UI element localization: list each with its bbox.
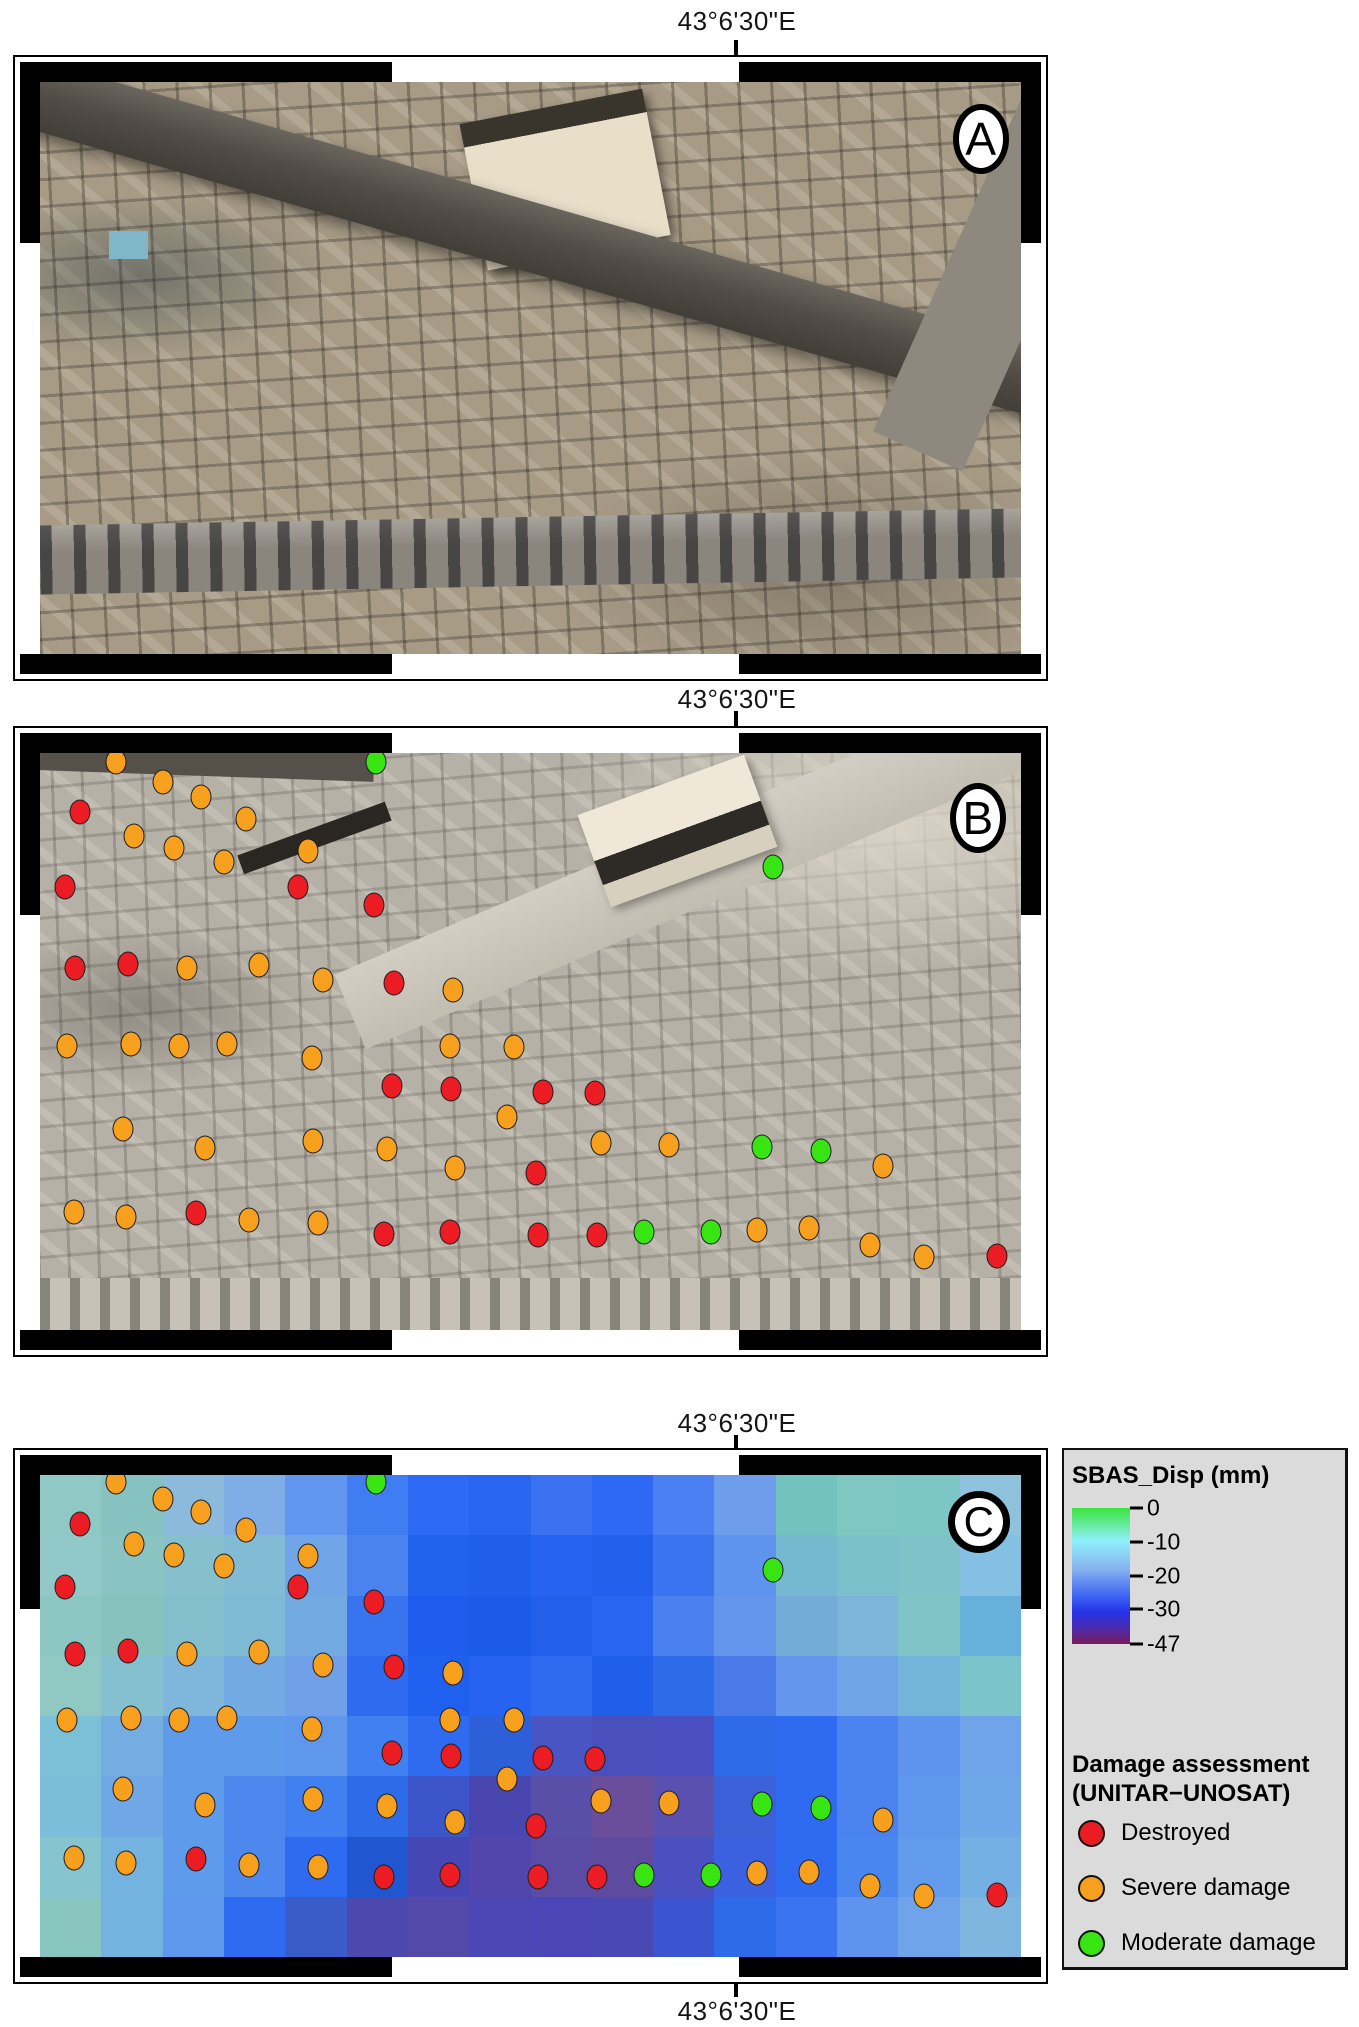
tick-label: -20 <box>1147 1563 1180 1590</box>
damage-dot-destroyed <box>585 1080 606 1105</box>
severe-swatch <box>1078 1875 1105 1902</box>
damage-dot-destroyed <box>363 1589 384 1614</box>
damage-dot-destroyed <box>374 1864 395 1889</box>
damage-dot-destroyed <box>288 1574 309 1599</box>
damage-dot-severe <box>248 1640 269 1665</box>
damage-dot-severe <box>444 1809 465 1834</box>
damage-dot-severe <box>297 838 318 863</box>
damage-dot-moderate <box>701 1219 722 1244</box>
damage-dot-severe <box>190 1499 211 1524</box>
damage-dot-severe <box>217 1031 238 1056</box>
damage-dot-destroyed <box>65 1642 86 1667</box>
damage-points-layer <box>40 1475 1021 1957</box>
coordinate-label-top: 43°6'30"E <box>537 6 937 37</box>
damage-legend-label: Severe damage <box>1121 1874 1290 1902</box>
damage-dot-destroyed <box>987 1243 1008 1268</box>
tick-label: -10 <box>1147 1529 1180 1556</box>
damage-dot-destroyed <box>526 1161 547 1186</box>
graticule-band-right <box>1021 62 1041 674</box>
graticule-band-top <box>20 733 1041 753</box>
damage-dot-severe <box>113 1117 134 1142</box>
damage-dot-severe <box>591 1788 612 1813</box>
damage-dot-moderate <box>752 1792 773 1817</box>
damage-dot-severe <box>496 1104 517 1129</box>
panel-b: B <box>13 726 1048 1357</box>
graticule-band-left <box>20 733 40 1350</box>
damage-dot-severe <box>121 1031 142 1056</box>
damage-dot-severe <box>164 836 185 861</box>
colorbar-tick: -10 <box>1130 1529 1180 1556</box>
damage-legend-title-line1: Damage assessment <box>1072 1750 1309 1779</box>
damage-dot-destroyed <box>65 955 86 980</box>
damage-dot-severe <box>872 1154 893 1179</box>
graticule-white-segment <box>392 1330 739 1350</box>
graticule-white-segment <box>1021 243 1041 654</box>
graticule-band-right <box>1021 733 1041 1350</box>
graticule-white-segment <box>392 654 739 674</box>
panel-a-badge: A <box>953 104 1009 174</box>
damage-legend-label: Destroyed <box>1121 1819 1230 1847</box>
colorbar-tick: -20 <box>1130 1563 1180 1590</box>
tick-mark <box>1130 1507 1143 1510</box>
tick-mark <box>1130 1643 1143 1646</box>
damage-dot-severe <box>105 1475 126 1495</box>
damage-dot-severe <box>238 1207 259 1232</box>
damage-dot-severe <box>301 1045 322 1070</box>
colorbar-tick: -47 <box>1130 1631 1180 1658</box>
graticule-white-segment <box>1021 915 1041 1330</box>
damage-dot-severe <box>217 1705 238 1730</box>
damage-dot-destroyed <box>70 799 91 824</box>
damage-dot-severe <box>747 1217 768 1242</box>
damage-dot-severe <box>307 1210 328 1235</box>
damage-dot-destroyed <box>533 1079 554 1104</box>
damage-dot-severe <box>859 1232 880 1257</box>
damage-dot-destroyed <box>587 1865 608 1890</box>
damage-dot-destroyed <box>384 1654 405 1679</box>
damage-dot-destroyed <box>118 951 139 976</box>
damage-dot-destroyed <box>374 1221 395 1246</box>
legend-box: SBAS_Disp (mm) 0-10-20-30-47 Damage asse… <box>1062 1448 1348 1970</box>
damage-dot-severe <box>302 1129 323 1154</box>
damage-dot-severe <box>190 784 211 809</box>
damage-dot-severe <box>194 1136 215 1161</box>
damage-dot-moderate <box>634 1863 655 1888</box>
panel-a-letter: A <box>965 112 996 166</box>
graticule-band-top <box>20 1455 1041 1475</box>
damage-dot-severe <box>113 1777 134 1802</box>
damage-dot-destroyed <box>185 1200 206 1225</box>
damage-dot-severe <box>214 850 235 875</box>
damage-dot-severe <box>152 1487 173 1512</box>
graticule-white-segment <box>20 243 40 654</box>
damage-dot-severe <box>57 1707 78 1732</box>
sbas-colorbar <box>1072 1508 1130 1644</box>
damage-dot-severe <box>377 1794 398 1819</box>
graticule-band-bottom <box>20 1330 1041 1350</box>
damage-dot-severe <box>152 769 173 794</box>
damage-dot-severe <box>443 1661 464 1686</box>
tick-label: -30 <box>1147 1596 1180 1623</box>
sbas-colorbar-ticks: 0-10-20-30-47 <box>1130 1508 1250 1644</box>
damage-dot-severe <box>872 1808 893 1833</box>
damage-dot-destroyed <box>987 1882 1008 1907</box>
damage-dot-moderate <box>366 753 387 774</box>
damage-dot-destroyed <box>382 1073 403 1098</box>
damage-dot-severe <box>444 1155 465 1180</box>
panel-b-badge: B <box>950 783 1006 853</box>
damage-dot-severe <box>124 823 145 848</box>
damage-dot-destroyed <box>526 1813 547 1838</box>
damage-dot-moderate <box>701 1863 722 1888</box>
damage-dot-severe <box>177 955 198 980</box>
damage-dot-severe <box>312 968 333 993</box>
damage-dot-destroyed <box>384 970 405 995</box>
damage-dot-severe <box>913 1884 934 1909</box>
damage-dot-severe <box>236 806 257 831</box>
blue-rooftop <box>109 231 148 260</box>
damage-legend-title-line2: (UNITAR−UNOSAT) <box>1072 1779 1309 1808</box>
graticule-white-segment <box>20 1609 40 1957</box>
damage-dot-severe <box>307 1855 328 1880</box>
damage-dot-severe <box>194 1793 215 1818</box>
damage-dot-severe <box>116 1204 137 1229</box>
damage-dot-destroyed <box>440 1219 461 1244</box>
damage-legend-item-destroyed: Destroyed <box>1078 1816 1341 1850</box>
damage-dot-destroyed <box>528 1222 549 1247</box>
damage-dot-severe <box>57 1034 78 1059</box>
tick-mark <box>1130 1608 1143 1611</box>
damage-dot-severe <box>503 1034 524 1059</box>
damage-legend-item-moderate: Moderate damage <box>1078 1926 1341 1960</box>
damage-dot-destroyed <box>585 1746 606 1771</box>
graticule-white-segment <box>392 733 739 753</box>
damage-dot-severe <box>238 1852 259 1877</box>
tick-label: 0 <box>1147 1495 1160 1522</box>
damage-dot-severe <box>177 1642 198 1667</box>
sbas-legend-title: SBAS_Disp (mm) <box>1072 1462 1269 1490</box>
damage-dot-severe <box>377 1137 398 1162</box>
damage-dot-severe <box>121 1705 142 1730</box>
graticule-band-top <box>20 62 1041 82</box>
damage-dot-destroyed <box>587 1222 608 1247</box>
damage-dot-destroyed <box>288 874 309 899</box>
damage-dot-severe <box>859 1873 880 1898</box>
panel-c: C <box>13 1448 1048 1984</box>
damage-dot-destroyed <box>528 1865 549 1890</box>
damage-dot-destroyed <box>533 1745 554 1770</box>
graticule-band-bottom <box>20 1957 1041 1977</box>
damage-dot-severe <box>312 1652 333 1677</box>
destroyed-swatch <box>1078 1820 1105 1847</box>
damage-dot-severe <box>658 1790 679 1815</box>
damage-dot-moderate <box>810 1795 831 1820</box>
damage-dot-severe <box>443 978 464 1003</box>
graticule-tick <box>734 1983 738 1997</box>
damage-dot-severe <box>164 1542 185 1567</box>
panel-b-letter: B <box>962 791 993 845</box>
damage-dot-severe <box>301 1717 322 1742</box>
damage-dot-severe <box>169 1707 190 1732</box>
damage-dot-severe <box>105 753 126 774</box>
graticule-band-left <box>20 1455 40 1977</box>
damage-dot-moderate <box>752 1135 773 1160</box>
damage-dot-severe <box>214 1554 235 1579</box>
tick-mark <box>1130 1541 1143 1544</box>
damage-legend-item-severe: Severe damage <box>1078 1871 1341 1905</box>
damage-dot-severe <box>440 1707 461 1732</box>
damage-dot-severe <box>302 1787 323 1812</box>
graticule-white-segment <box>392 62 739 82</box>
damage-dot-destroyed <box>382 1741 403 1766</box>
damage-dot-destroyed <box>54 1574 75 1599</box>
damage-dot-severe <box>169 1034 190 1059</box>
damage-dot-severe <box>503 1708 524 1733</box>
graticule-white-segment <box>392 1957 739 1977</box>
colorbar-tick: -30 <box>1130 1596 1180 1623</box>
graticule-white-segment <box>20 915 40 1330</box>
damage-dot-severe <box>747 1861 768 1886</box>
satellite-map-b: B <box>40 753 1021 1330</box>
graticule-band-bottom <box>20 654 1041 674</box>
sbas-displacement-map: C <box>40 1475 1021 1957</box>
satellite-map-a: A <box>40 82 1021 654</box>
tick-label: -47 <box>1147 1631 1180 1658</box>
damage-dot-destroyed <box>441 1077 462 1102</box>
damage-dot-moderate <box>810 1139 831 1164</box>
damage-legend-label: Moderate damage <box>1121 1929 1316 1957</box>
damage-dot-severe <box>64 1199 85 1224</box>
damage-dot-destroyed <box>118 1638 139 1663</box>
damage-dot-severe <box>799 1216 820 1241</box>
damage-dot-destroyed <box>54 874 75 899</box>
coordinate-label-bottom: 43°6'30"E <box>537 1996 937 2027</box>
damage-dot-severe <box>64 1846 85 1871</box>
graticule-white-segment <box>392 1455 739 1475</box>
panel-a: A <box>13 55 1048 681</box>
damage-dot-destroyed <box>70 1512 91 1537</box>
damage-dot-severe <box>496 1766 517 1791</box>
damage-dot-severe <box>913 1245 934 1270</box>
damage-dot-severe <box>591 1131 612 1156</box>
damage-dot-severe <box>124 1531 145 1556</box>
damage-dot-destroyed <box>185 1847 206 1872</box>
damage-dot-severe <box>248 953 269 978</box>
damage-dot-severe <box>236 1517 257 1542</box>
panel-c-letter: C <box>964 1498 994 1546</box>
damage-dot-moderate <box>762 855 783 880</box>
graticule-band-right <box>1021 1455 1041 1977</box>
graticule-white-segment <box>1021 1609 1041 1957</box>
damage-dot-severe <box>799 1860 820 1885</box>
damage-dot-severe <box>297 1544 318 1569</box>
damage-dot-severe <box>440 1034 461 1059</box>
tick-mark <box>1130 1575 1143 1578</box>
damage-dot-moderate <box>366 1475 387 1495</box>
damage-points-layer <box>40 753 1021 1330</box>
damage-dot-moderate <box>762 1558 783 1583</box>
panel-c-badge: C <box>948 1491 1010 1553</box>
damage-dot-severe <box>116 1850 137 1875</box>
damage-dot-destroyed <box>440 1863 461 1888</box>
damage-dot-destroyed <box>363 892 384 917</box>
moderate-swatch <box>1078 1930 1105 1957</box>
graticule-band-left <box>20 62 40 674</box>
damage-dot-severe <box>658 1133 679 1158</box>
damage-dot-destroyed <box>441 1744 462 1769</box>
colorbar-tick: 0 <box>1130 1495 1160 1522</box>
damage-dot-moderate <box>634 1219 655 1244</box>
damage-legend-title: Damage assessment (UNITAR−UNOSAT) <box>1072 1750 1309 1808</box>
